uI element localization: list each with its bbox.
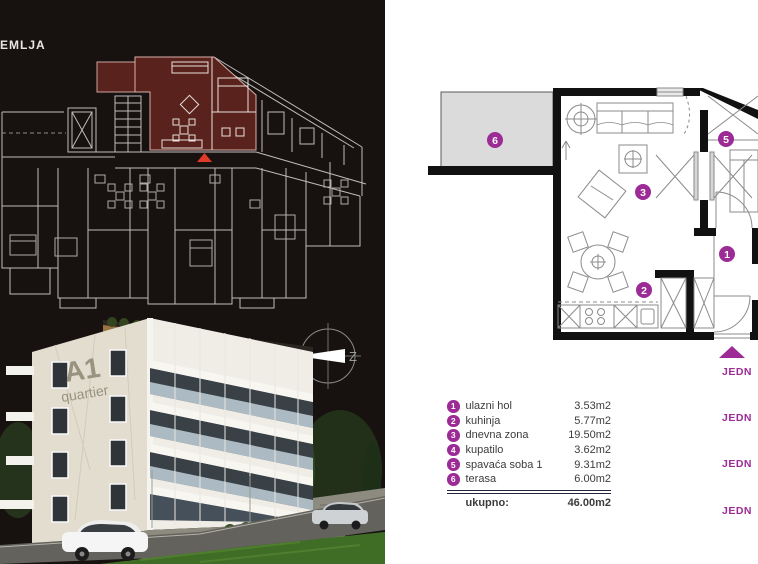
left-panel: EMLJA [0,0,385,564]
svg-text:5: 5 [723,134,729,146]
ceiling-light [565,103,597,135]
coffee-table [619,145,647,173]
sofa [597,103,673,133]
orientation-arrow [562,141,570,160]
badge-terrace: 6 [487,132,503,148]
legend-row: 1 ulazni hol 3.53m2 [447,399,611,414]
kitchen-counter [558,302,658,328]
legend-row: 3 dnevna zona 19.50m2 [447,428,611,443]
room-number-badge: 1 [447,400,460,413]
svg-text:1: 1 [724,249,730,261]
room-area: 3.62m2 [557,444,611,456]
bedroom-door [716,192,752,228]
compass-letter: Z [349,349,357,364]
entrance-door [714,296,750,332]
overview-floorplan [0,0,385,312]
fixtures [558,88,758,338]
room-name: dnevna zona [466,429,558,441]
room-number-badge: 3 [447,429,460,442]
overview-furniture [10,175,348,266]
apartment-type-label: JEDN [722,366,758,378]
room-name: terasa [466,473,558,485]
room-legend: 1 ulazni hol 3.53m2 2 kuhinja 5.77m2 3 d… [447,399,611,511]
legend-row: 4 kupatilo 3.62m2 [447,443,611,458]
legend-row: 6 terasa 6.00m2 [447,472,611,487]
legend-row: 2 kuhinja 5.77m2 [447,414,611,429]
apartment-type-label: JEDN [722,412,758,424]
elevator-shaft [68,108,96,152]
apartment-type-label: JEDN [722,505,758,517]
legend-total-row: ukupno: 46.00m2 [447,496,611,511]
svg-text:2: 2 [641,285,647,297]
legend-total-separator [447,490,611,494]
room-area: 9.31m2 [557,459,611,471]
room-number-badge: 2 [447,415,460,428]
double-door [656,152,752,200]
brochure-page: { "panel_left": { "floor_label": "EMLJA"… [0,0,758,564]
badge-hall: 1 [719,246,735,262]
total-value: 46.00m2 [557,497,611,509]
highlighted-apartment [97,57,256,162]
room-number-badge: 6 [447,473,460,486]
room-area: 5.77m2 [557,415,611,427]
svg-text:3: 3 [640,187,646,199]
apartment-type-label: JEDN [722,458,758,470]
room-number-badge: 4 [447,444,460,457]
legend-row: 5 spavaća soba 1 9.31m2 [447,457,611,472]
room-area: 19.50m2 [557,429,611,441]
svg-text:6: 6 [492,135,498,147]
room-name: kuhinja [466,415,558,427]
room-area: 6.00m2 [557,473,611,485]
overview-entrance-marker [197,153,212,162]
room-name: ulazni hol [466,400,558,412]
entrance-marker [719,346,745,358]
badge-living: 3 [635,184,651,200]
stairwell [115,96,141,152]
total-label: ukupno: [466,497,558,509]
room-name: spavaća soba 1 [466,459,558,471]
armchair [578,170,626,218]
dining-table [568,232,629,293]
room-area: 3.53m2 [557,400,611,412]
room-number-badge: 5 [447,458,460,471]
building-render: Z [0,310,385,564]
badge-bedroom: 5 [718,131,734,147]
badge-kitchen: 2 [636,282,652,298]
room-name: kupatilo [466,444,558,456]
